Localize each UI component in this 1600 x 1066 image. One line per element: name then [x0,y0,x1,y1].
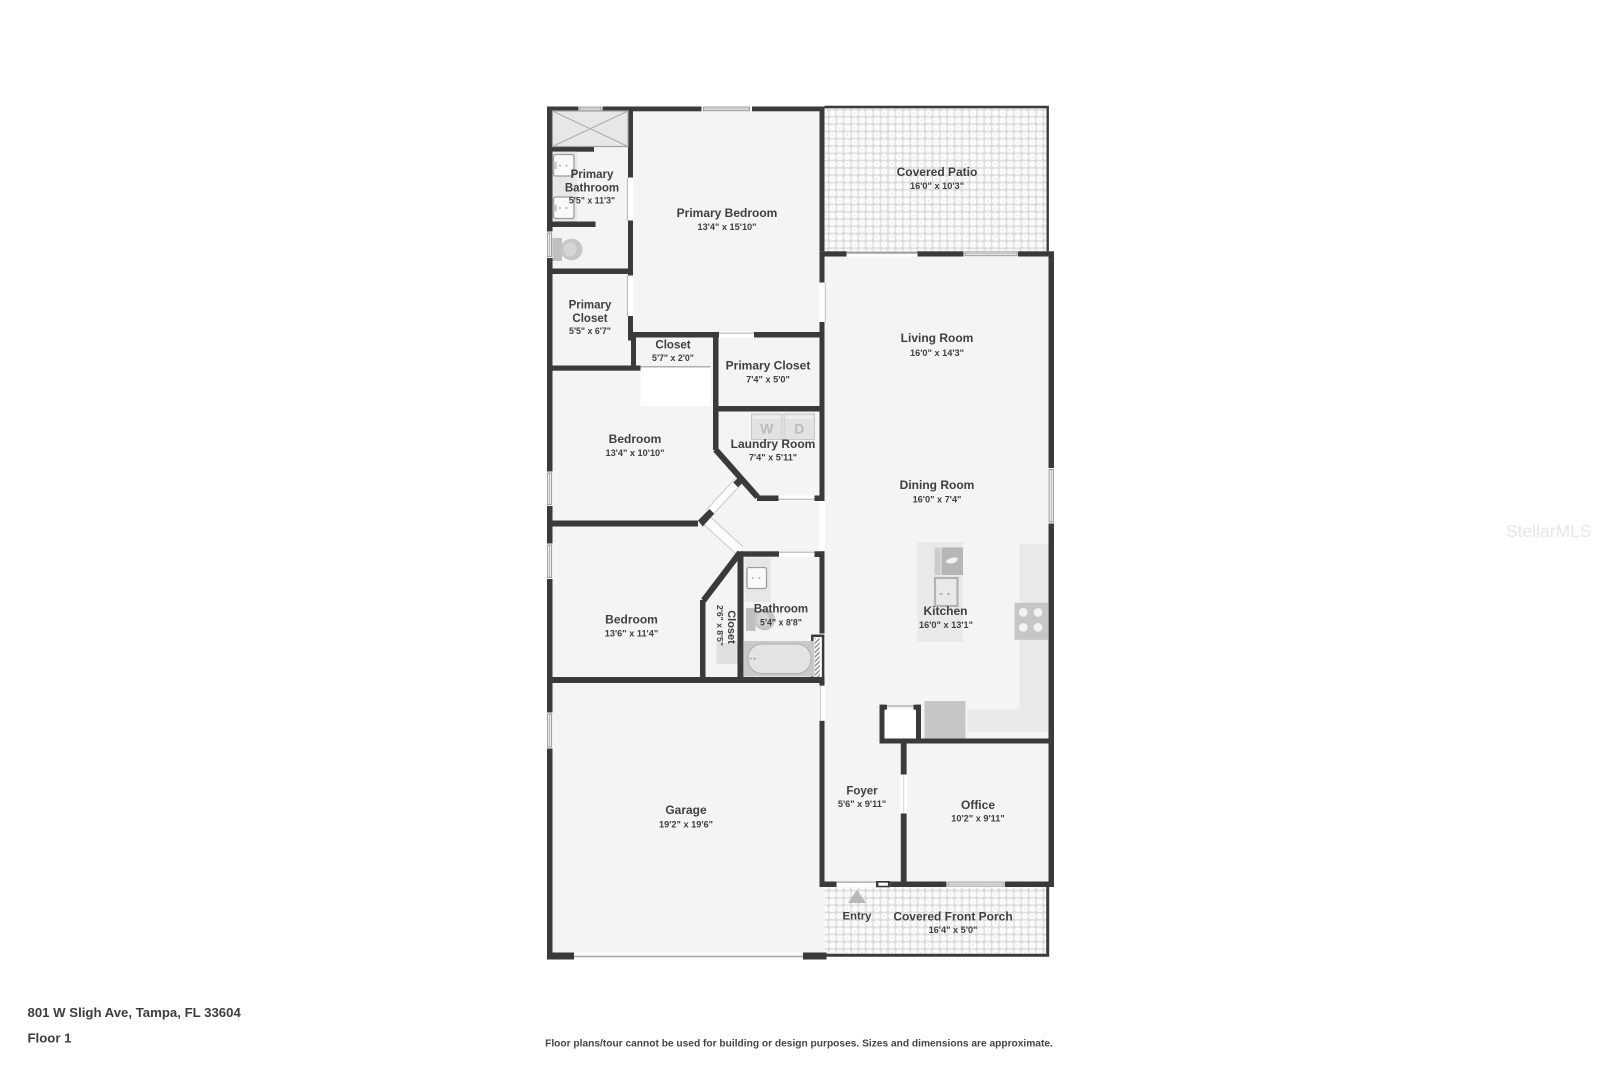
svg-text:5'5" x 11'3": 5'5" x 11'3" [569,195,615,205]
svg-text:13'6" x 11'4": 13'6" x 11'4" [605,629,658,639]
svg-text:16'0" x 7'4": 16'0" x 7'4" [913,495,962,505]
svg-text:Closet: Closet [572,313,607,325]
svg-text:Closet: Closet [655,340,690,352]
svg-text:5'6" x 9'11": 5'6" x 9'11" [838,799,886,809]
svg-text:7'4" x 5'11": 7'4" x 5'11" [749,453,797,463]
svg-text:Bathroom: Bathroom [565,183,619,195]
svg-text:Primary: Primary [569,300,612,312]
svg-text:16'4" x 5'0": 16'4" x 5'0" [929,925,978,935]
svg-text:Kitchen: Kitchen [923,604,967,618]
svg-text:Covered Front Porch: Covered Front Porch [893,910,1012,924]
svg-text:16'0" x 13'1": 16'0" x 13'1" [919,620,973,630]
svg-text:Covered Patio: Covered Patio [897,165,978,179]
svg-text:2'6" x 8'5": 2'6" x 8'5" [715,605,725,646]
svg-text:5'4" x 8'8": 5'4" x 8'8" [760,617,802,627]
svg-text:Entry: Entry [843,910,873,922]
svg-text:Bedroom: Bedroom [605,613,658,627]
svg-text:Living Room: Living Room [901,331,974,345]
svg-text:D: D [794,421,804,437]
svg-text:Laundry Room: Laundry Room [731,437,816,451]
svg-text:StellarMLS: StellarMLS [1506,521,1592,541]
svg-text:5'7" x 2'0": 5'7" x 2'0" [652,353,694,363]
svg-text:Floor plans/tour cannot be use: Floor plans/tour cannot be used for buil… [545,1039,1053,1050]
svg-text:Primary: Primary [571,169,614,181]
svg-text:Bedroom: Bedroom [609,432,662,446]
svg-text:Floor 1: Floor 1 [28,1031,72,1046]
svg-text:Bathroom: Bathroom [754,604,808,616]
svg-text:Closet: Closet [725,610,737,644]
svg-text:W: W [760,421,774,437]
svg-text:Garage: Garage [665,803,707,817]
svg-text:19'2" x 19'6": 19'2" x 19'6" [659,819,713,829]
svg-text:Office: Office [961,798,995,812]
svg-text:Primary Bedroom: Primary Bedroom [677,206,778,220]
svg-text:5'5" x 6'7": 5'5" x 6'7" [569,326,611,336]
svg-text:13'4" x 15'10": 13'4" x 15'10" [697,222,756,232]
svg-text:Foyer: Foyer [846,786,878,798]
svg-text:13'4" x 10'10": 13'4" x 10'10" [605,448,664,458]
svg-text:Primary Closet: Primary Closet [726,359,811,373]
svg-text:16'0" x 10'3": 16'0" x 10'3" [910,181,964,191]
svg-text:10'2" x 9'11": 10'2" x 9'11" [951,814,1004,824]
svg-text:7'4" x 5'0": 7'4" x 5'0" [746,375,790,385]
svg-text:Dining Room: Dining Room [900,478,975,492]
svg-text:801 W Sligh Ave, Tampa, FL 336: 801 W Sligh Ave, Tampa, FL 33604 [28,1005,242,1020]
svg-text:16'0" x 14'3": 16'0" x 14'3" [910,348,964,358]
